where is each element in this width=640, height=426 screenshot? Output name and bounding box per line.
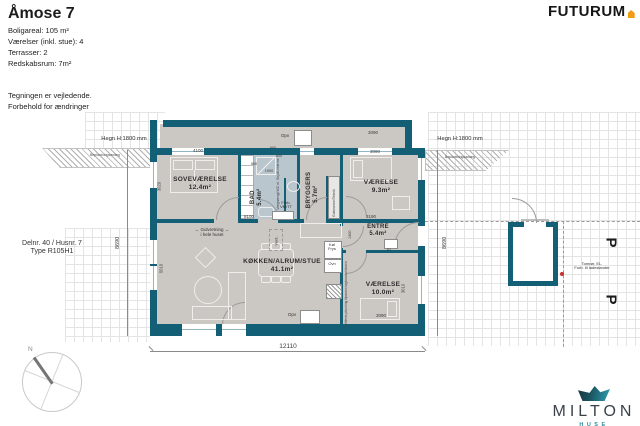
room-label-bad: BAD 5.4m² — [244, 182, 270, 212]
room-area: 5.4m² — [257, 184, 264, 210]
dim-stue-width: 8100 — [236, 214, 262, 219]
screen-planting-left — [42, 148, 154, 168]
futurum-house-icon — [628, 10, 635, 18]
dim-line-left-height — [127, 150, 128, 336]
spec-vaerelser: Værelser (inkl. stue): 4 — [8, 37, 83, 48]
spec-terrasser: Terrasser: 2 — [8, 48, 83, 59]
el-label: EL. — [384, 248, 396, 252]
washer-box — [272, 211, 294, 220]
room-area: 41.1m² — [225, 266, 339, 274]
dim-left-height: 8690 — [115, 237, 121, 249]
dim-entre-depth-wrap: 1300 — [346, 226, 354, 244]
dim-entre-width: 3190 — [358, 214, 384, 219]
teknik-label: Gulvvarme/Teknik — [332, 179, 336, 217]
parking-space-1: P — [602, 238, 620, 256]
dim-stue-height: 5010 — [159, 264, 164, 274]
dim-sove-height-wrap: 3020 — [154, 174, 164, 198]
futurum-wordmark: FUTURUM — [548, 3, 626, 20]
fence-label-left: Hegn H:1800 mm — [92, 136, 156, 142]
room-name: SOVEVÆRELSE — [162, 176, 238, 184]
compass-rose: N — [22, 352, 82, 412]
window-bryggers-top — [300, 148, 314, 155]
teknik-cabinet: Gulvvarme/Teknik — [328, 176, 340, 219]
screen-planting-left-label: Beplantningsanlæg — [70, 154, 140, 158]
charger-dot — [560, 272, 564, 276]
frys-label: Frys — [324, 247, 340, 251]
room-area: 5.4m² — [354, 231, 402, 238]
dim-right-height: 8690 — [442, 237, 448, 249]
dim-bad-600: 600 — [266, 146, 280, 150]
heatpump-unit — [294, 130, 312, 146]
charger-note: Tomrør, EL. Forb. til ladestander — [566, 262, 618, 271]
dim-vaerelse1-width: 3090 — [362, 149, 388, 154]
loftlem-note-text: Loftlems placering tilpasses tagkonstruk… — [344, 258, 348, 330]
dim-bad-1900: 1900 — [258, 169, 280, 173]
dim-left-height-wrap: 8690 — [112, 228, 124, 258]
room-label-stue: KØKKEN/ALRUM/STUE 41.1m² — [225, 258, 339, 274]
charger-note-line-2: Forb. til ladestander — [566, 266, 618, 270]
dim-total-width: 12110 — [260, 343, 316, 350]
plot-type: Type R105H1 — [12, 248, 92, 256]
floor-direction-line-2: i hele huset — [184, 233, 240, 238]
dim-sove-height: 3020 — [157, 182, 162, 192]
floor-direction-note: ← Gulvretning → i hele huset — [184, 228, 240, 238]
dining-chair — [271, 276, 281, 283]
disclaimer-line-1: Tegningen er vejledende. — [8, 90, 92, 101]
dining-chair — [281, 276, 291, 283]
dim-entre-depth: 1300 — [348, 231, 352, 239]
forb-line-2: VM/TT — [275, 205, 297, 209]
dim-vaerelse2-height-wrap: 3010 — [398, 276, 408, 300]
room-area: 9.3m² — [350, 187, 412, 195]
rug-circle — [194, 276, 222, 304]
shed-outline — [508, 222, 558, 286]
parking-label-1: P — [603, 238, 620, 256]
dining-chair — [261, 276, 271, 283]
disclaimer-line-2: Forbehold for ændringer — [8, 101, 92, 112]
terrace-door-bottom — [222, 324, 246, 336]
room-label-sovevaerelse: SOVEVÆRELSE 12.4m² — [162, 176, 238, 192]
vent-box: Vent. — [269, 229, 283, 251]
dim-line-total-width — [150, 351, 425, 352]
fridge-freezer-label: Køl Frys — [324, 243, 340, 252]
terrace-stub-right — [405, 120, 412, 150]
dim-line-right-height — [437, 150, 438, 336]
loftlem-note: Loftlems placering tilpasses tagkonstruk… — [340, 268, 352, 320]
spec-redskabsrum: Redskabsrum: 7m² — [8, 59, 83, 70]
parking-label-2: P — [603, 295, 620, 313]
spec-list: Boligareal: 105 m² Værelser (inkl. stue)… — [8, 26, 83, 70]
dim-vaerelse2-width: 3090 — [368, 313, 394, 318]
dim-right-height-wrap: 8690 — [439, 228, 451, 258]
screen-planting-right-label: Beplantningsanlæg — [430, 156, 490, 160]
milton-wordmark: MILTON — [548, 403, 640, 421]
bed-vaerelse1 — [350, 157, 392, 181]
dim-stue-height-wrap: 5010 — [156, 256, 166, 280]
dim-bad-500: 500 — [248, 162, 260, 166]
heatpump-label: Opv — [278, 134, 292, 139]
room-label-entre: ENTRE 5.4m² — [354, 224, 402, 238]
sofa-horizontal — [192, 306, 232, 320]
dishwasher-label: Opv — [285, 313, 299, 318]
room-area: 5.7m² — [313, 180, 320, 208]
futurum-logo: FUTURUM — [548, 3, 635, 20]
page-title: Åmose 7 — [8, 5, 75, 23]
milton-logo: MILTON HUSE — [548, 386, 640, 426]
site-boundary-vertical — [563, 221, 564, 347]
dishwasher-box — [300, 310, 320, 324]
parking-space-2: P — [602, 295, 620, 313]
dim-vaerelse2-height: 3010 — [401, 284, 406, 294]
plot-info: Delnr. 40 / Husnr. 7 Type R105H1 — [12, 240, 92, 255]
window-stue-bottom — [182, 324, 216, 336]
disclaimer: Tegningen er vejledende. Forbehold for æ… — [8, 90, 92, 113]
compass-north-label: N — [28, 346, 33, 353]
dim-terrace-right: 3090 — [360, 130, 386, 135]
milton-boat-icon — [578, 386, 610, 401]
terrace-top-wall — [163, 120, 412, 127]
dim-sove-width: 4100 — [184, 148, 212, 153]
room-label-vaerelse1: VÆRELSE 9.3m² — [350, 179, 412, 195]
room-label-bryggers: BRYGGERS 5.7m² — [299, 175, 327, 215]
floor-direction-arrow-right: → — [225, 227, 230, 232]
terrace-stub-left — [150, 120, 157, 150]
desk-vaerelse1 — [392, 196, 410, 210]
fence-label-right: Hegn H:1800 mm — [428, 136, 492, 142]
dim-bad-800: 800 — [272, 154, 286, 158]
window-vaerelse1-right — [418, 158, 425, 180]
floor-direction-arrow-left: ← — [195, 227, 200, 232]
plot-delnr: Delnr. 40 / Husnr. 7 — [12, 240, 92, 248]
window-vaerelse2-right — [418, 276, 425, 304]
washer-prep-label: Forb. VM/TT — [275, 201, 297, 210]
kitchen-counter — [300, 223, 342, 238]
vent-label: Vent. — [274, 234, 279, 246]
room-area: 12.4m² — [162, 184, 238, 192]
spec-boligareal: Boligareal: 105 m² — [8, 26, 83, 37]
milton-sub-wordmark: HUSE — [548, 422, 640, 426]
floorplan-sheet: Åmose 7 Boligareal: 105 m² Værelser (ink… — [0, 0, 640, 426]
room-name: VÆRELSE — [350, 179, 412, 187]
room-name: KØKKEN/ALRUM/STUE — [225, 258, 339, 266]
front-door-opening — [418, 226, 425, 246]
